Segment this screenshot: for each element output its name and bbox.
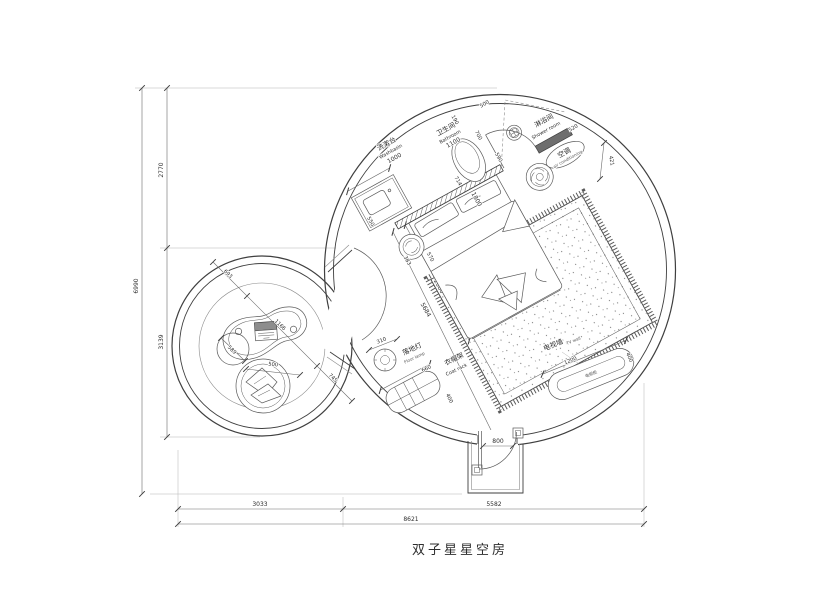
bed-bath-zone: 5684 2000 (332, 54, 694, 450)
dim-shower-opening: 500 (479, 99, 491, 109)
entry-vestibule: 800 (468, 428, 523, 493)
bathroom-door (486, 116, 538, 168)
dim-entry-door: 800 (492, 438, 504, 445)
dim-height-total: 6990 (133, 278, 140, 293)
dim-width-right: 5582 (486, 501, 501, 508)
bottom-dimensions: 3033 5582 8621 (175, 501, 647, 527)
dim-ottoman: 500 (268, 362, 278, 369)
dim-height-bottom: 3139 (158, 334, 165, 349)
dim-bath-door: 700 (473, 130, 483, 142)
door-frame-bottom (472, 465, 482, 475)
drawing-title: 双子星星空房 (412, 542, 508, 558)
dim-floor-lamp: 310 (376, 336, 387, 345)
ottoman (236, 359, 290, 413)
floor-plan-drawing: 6990 2770 3139 3033 5582 8621 (0, 0, 837, 592)
floor-plan-page: 6990 2770 3139 3033 5582 8621 (0, 0, 837, 592)
dim-width-left: 3033 (252, 501, 267, 508)
dim-room-diagonal: 5684 (419, 302, 433, 319)
dim-width-total: 8621 (403, 516, 418, 523)
dim-desk-offset: 693 (222, 269, 233, 280)
floor-lamp: 310 落地灯 Floor lamp (366, 336, 426, 371)
dim-ac-clearance: 421 (607, 155, 615, 166)
left-dimensions: 6990 2770 3139 (133, 85, 170, 497)
door-frame-top (513, 428, 523, 438)
laptop (254, 321, 277, 340)
dim-height-top: 2770 (158, 162, 165, 177)
dim-desk-clearance: 745 (327, 373, 338, 384)
floor-drain-icon (504, 123, 524, 143)
dim-coat-rack-d: 400 (444, 393, 454, 405)
dim-shower-screen: 520 (568, 123, 580, 133)
